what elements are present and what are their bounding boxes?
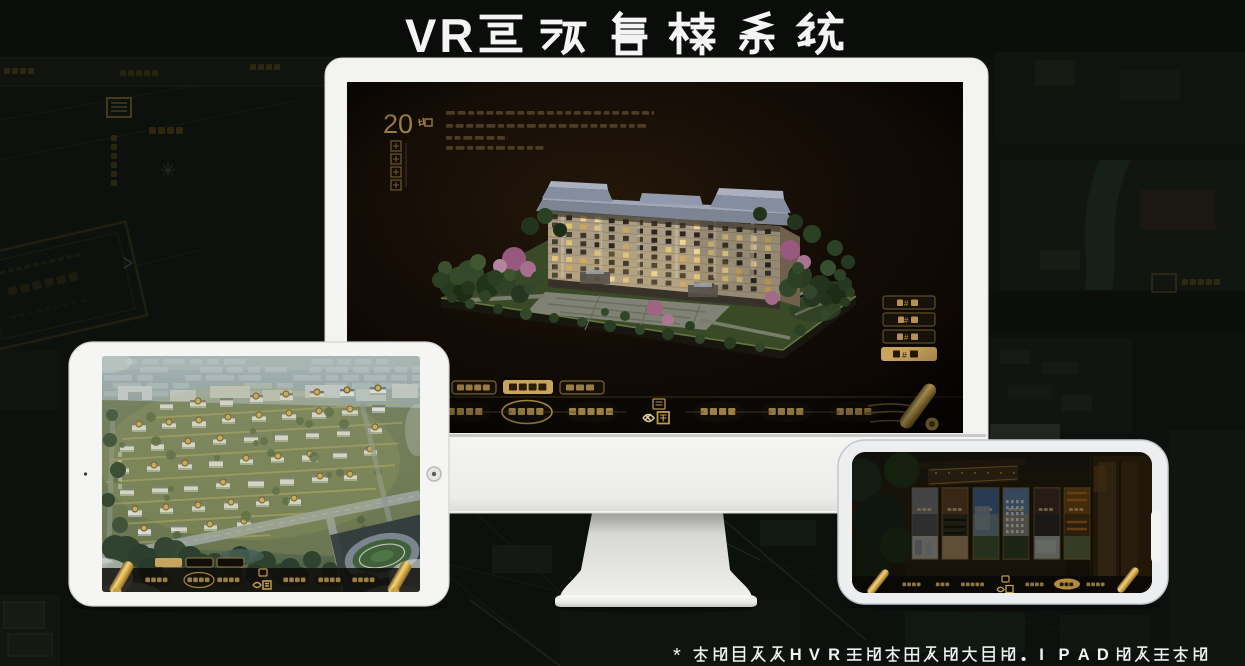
svg-text:A: A [1078,646,1090,664]
svg-text:V: V [809,646,820,664]
svg-text:P: P [1059,646,1070,664]
svg-text:VR: VR [405,9,476,62]
svg-text:D: D [1097,646,1109,664]
svg-text:R: R [828,646,840,664]
svg-text:*: * [673,645,681,666]
svg-text:I: I [1039,646,1044,664]
svg-text:H: H [790,646,802,664]
